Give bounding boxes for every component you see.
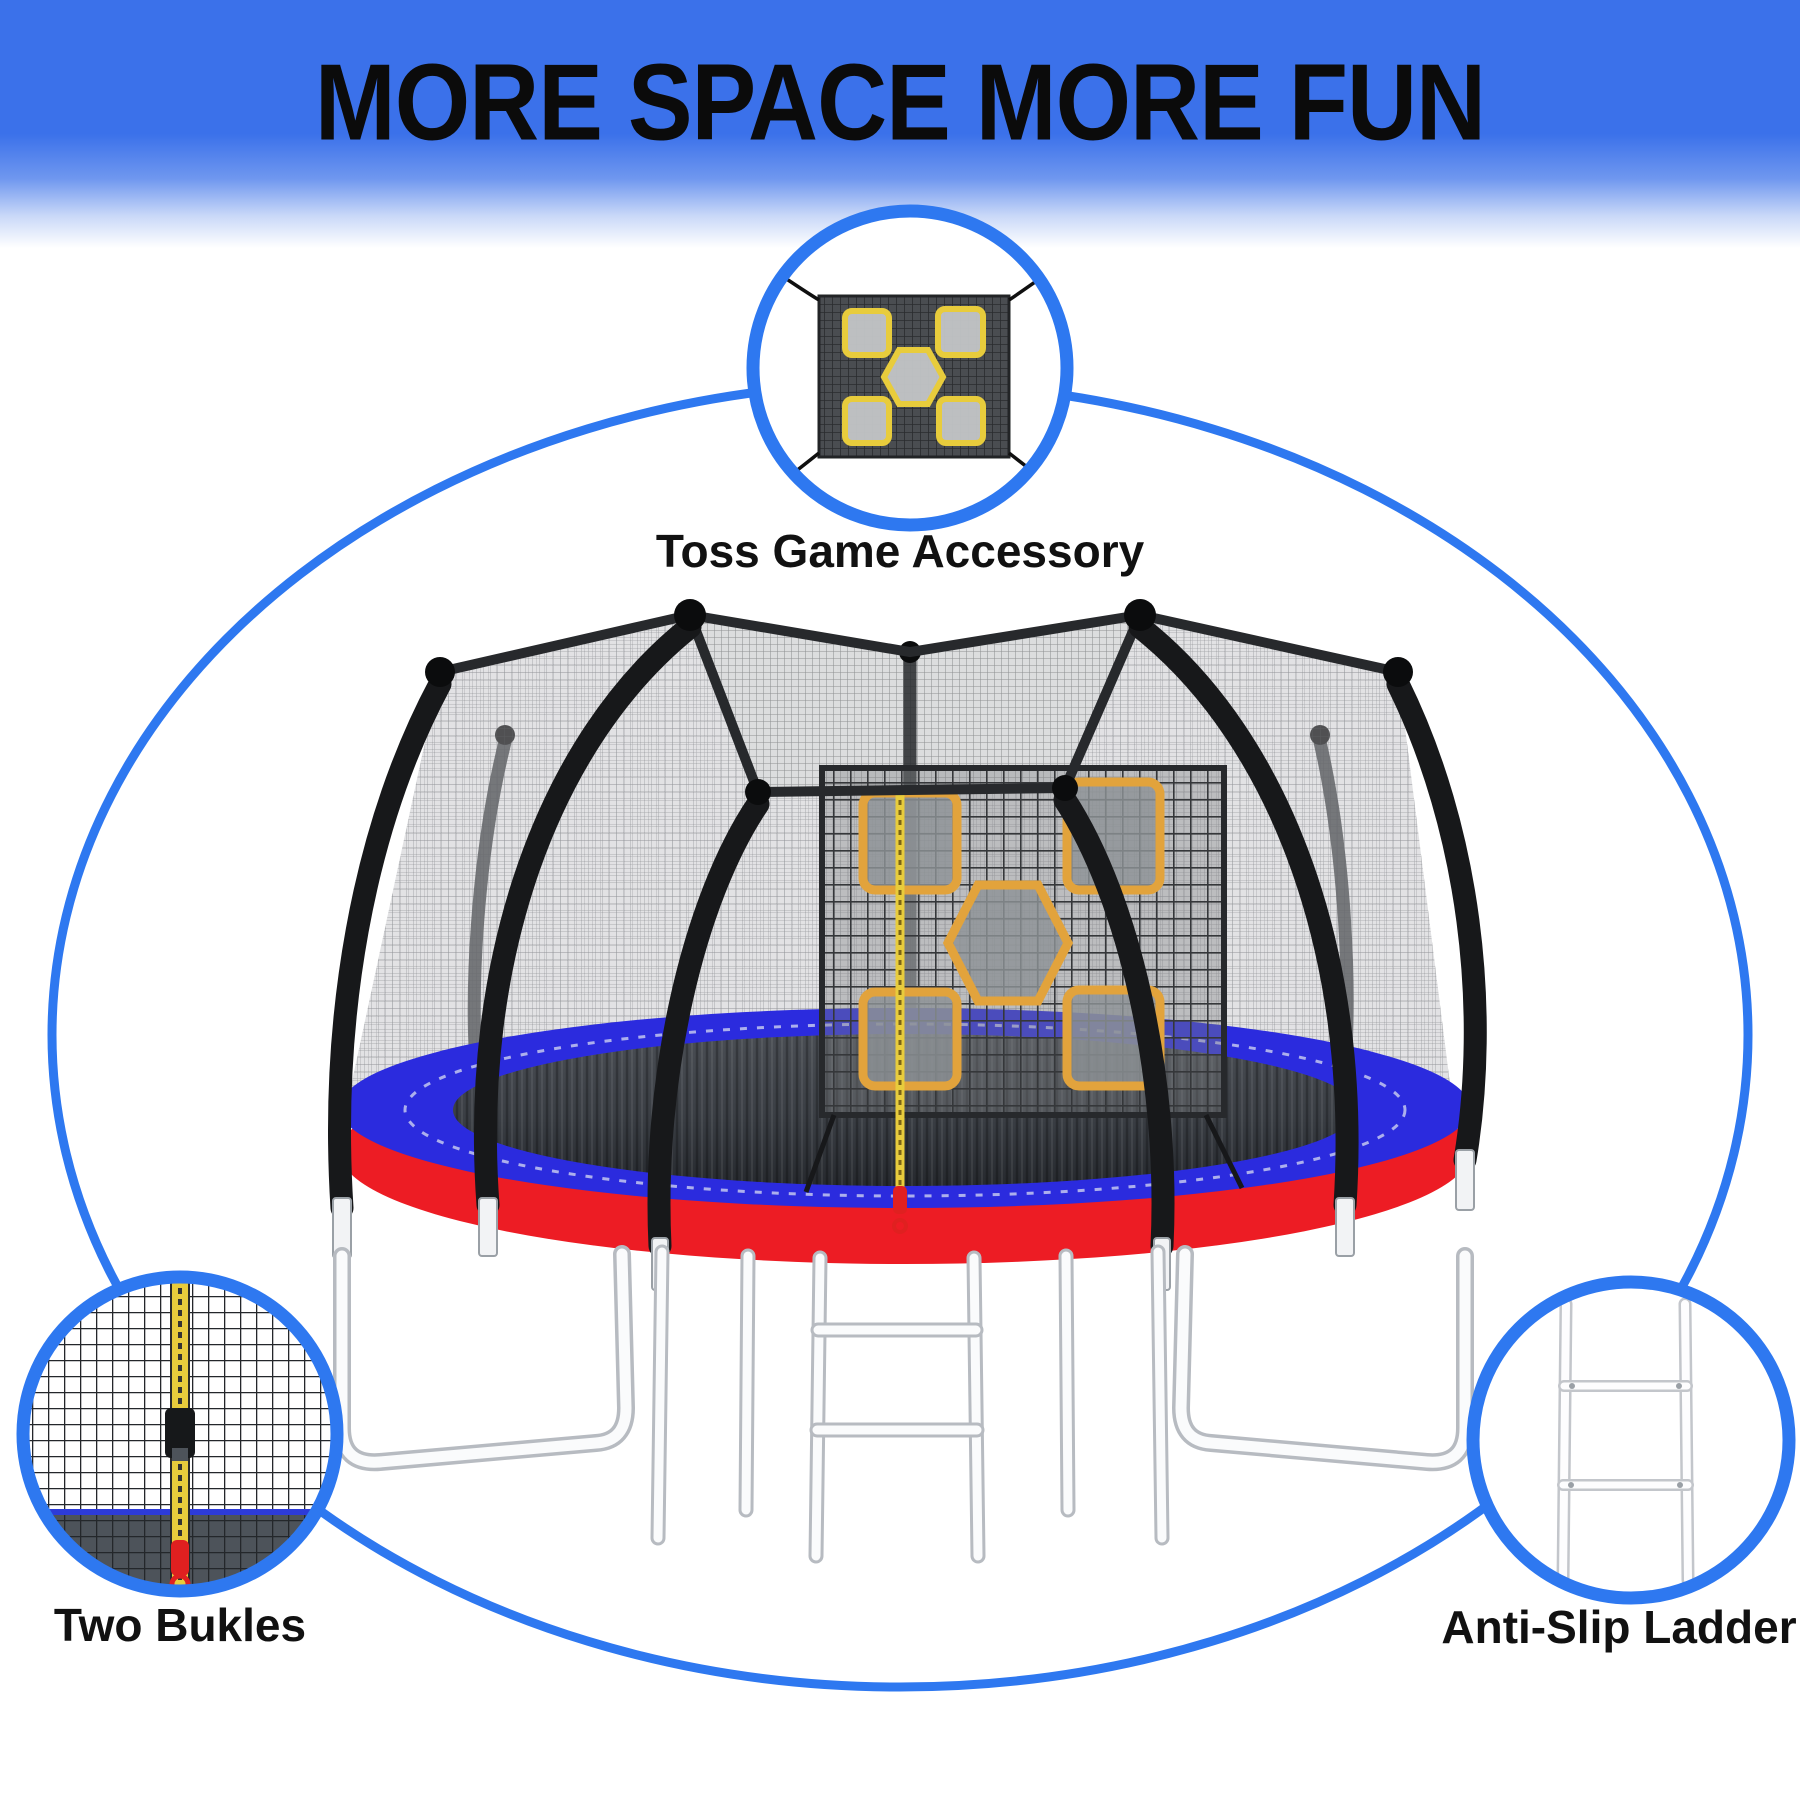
- callout-circle-toss-game: [753, 211, 1067, 525]
- toss-target-hexagon: [948, 885, 1068, 1001]
- frame-legs: [342, 1252, 1465, 1538]
- label-buckles: Two Bukles: [54, 1598, 306, 1652]
- label-ladder: Anti-Slip Ladder: [1441, 1600, 1796, 1654]
- front-post-left: [658, 1252, 662, 1538]
- toss-target-top-left: [863, 793, 957, 890]
- front-post-right: [1158, 1252, 1162, 1538]
- zipper-red-pull: [171, 1540, 189, 1576]
- side-leg-left: [342, 1254, 626, 1462]
- rear-post-right: [1066, 1256, 1068, 1510]
- product-infographic: MORE SPACE MORE FUN: [0, 0, 1800, 1800]
- trampoline-illustration: [333, 599, 1475, 1556]
- rear-post-left: [746, 1256, 748, 1510]
- toss-target-bottom-left: [863, 992, 957, 1086]
- zipper-pull: [893, 1186, 907, 1214]
- callout-circle-ladder: [1473, 1282, 1789, 1598]
- side-leg-right: [1181, 1254, 1465, 1462]
- label-toss-game: Toss Game Accessory: [656, 524, 1144, 578]
- product-scene: [0, 0, 1800, 1800]
- trampoline-ladder: [816, 1258, 978, 1556]
- callout-circle-buckles: [20, 1275, 342, 1605]
